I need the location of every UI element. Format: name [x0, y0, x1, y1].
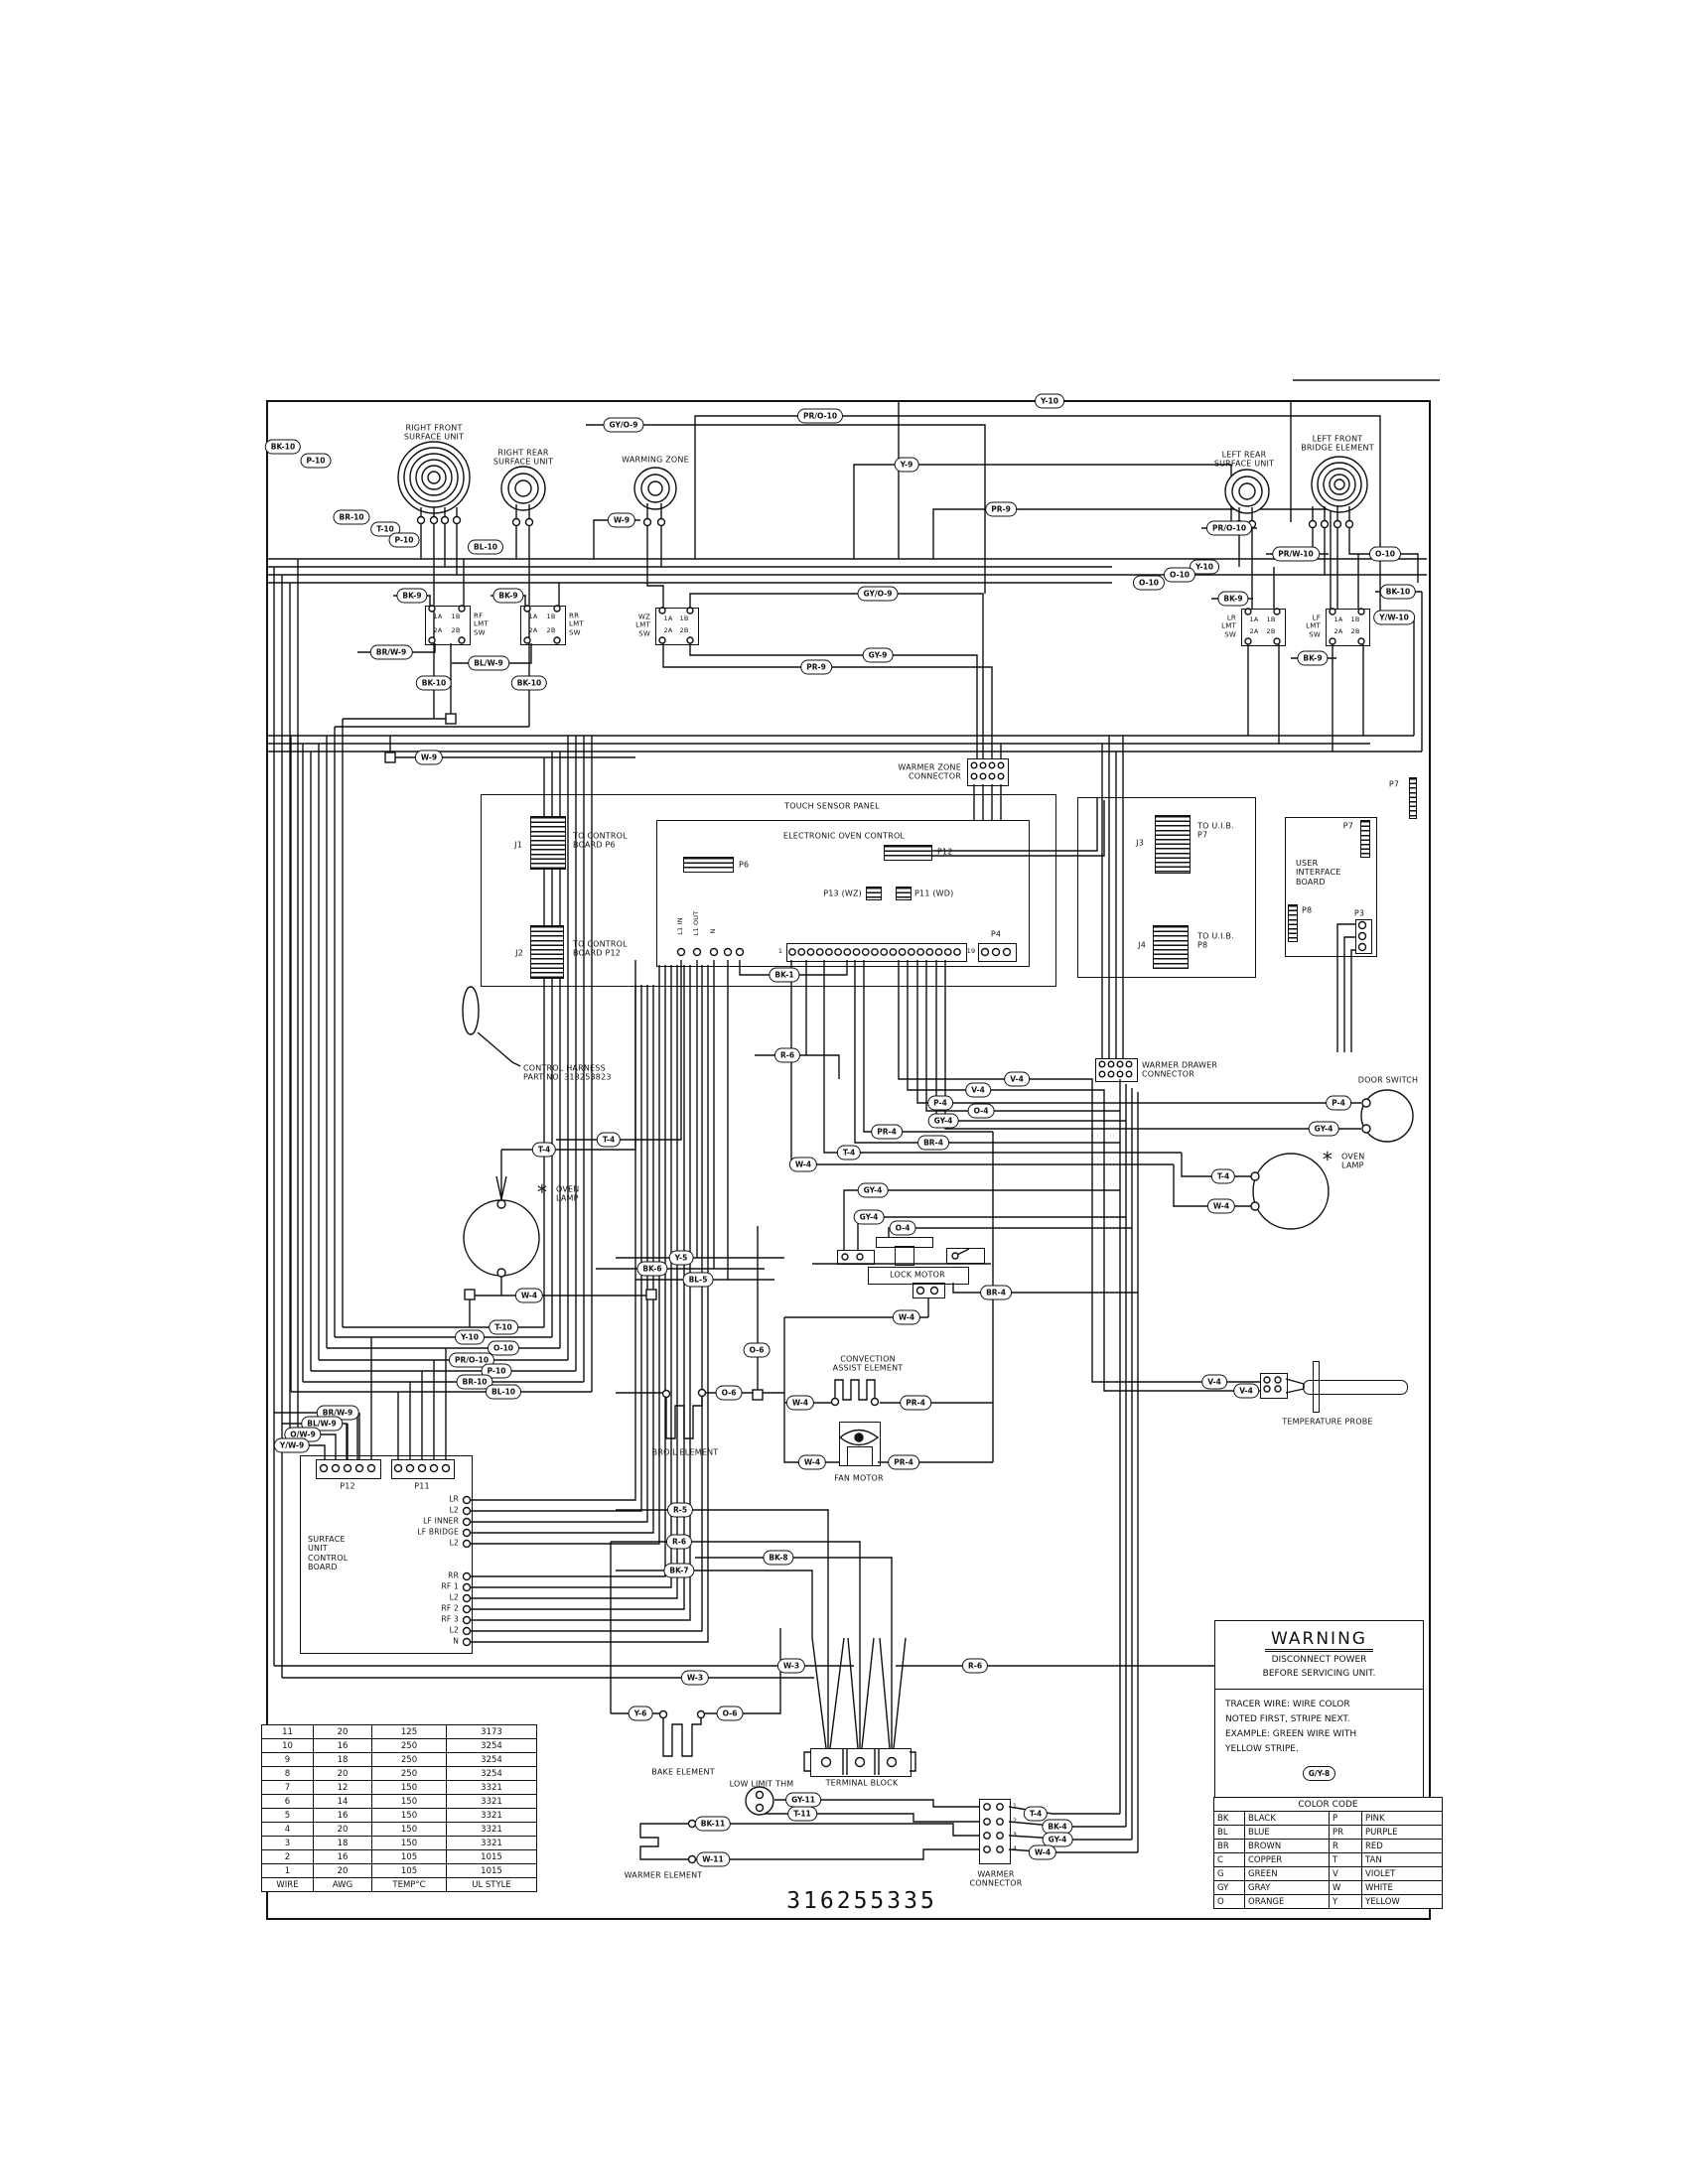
wire-table-cell: 18 [314, 1753, 372, 1767]
wire-table-cell: 12 [314, 1781, 372, 1795]
wire-label: PR-4 [871, 1125, 903, 1140]
wire-label: W-4 [893, 1310, 920, 1325]
lock-motor-left-plate [837, 1250, 875, 1265]
color-code-cell: W [1330, 1881, 1362, 1895]
wire-label: Y-10 [1035, 394, 1064, 409]
sucb-pin-label: N [453, 1638, 459, 1647]
color-code-cell: BROWN [1245, 1840, 1330, 1853]
wire-label: Y-10 [455, 1330, 485, 1345]
label: L1 OUT [693, 911, 701, 936]
rr-limit-switch-pin-label: 2A [529, 627, 538, 635]
label: * [1323, 1149, 1333, 1172]
sucb-p12-connector [316, 1459, 381, 1479]
oven-lamp-right-label: OVEN LAMP [1341, 1153, 1364, 1171]
wire-label: V-4 [965, 1083, 991, 1098]
label: L1 IN [677, 917, 685, 935]
label: TO CONTROL BOARD P12 [573, 940, 628, 959]
wire-label: T-10 [489, 1320, 518, 1335]
right-rear-surface-unit-label: RIGHT REAR SURFACE UNIT [493, 449, 553, 468]
sucb-pin-label: L2 [450, 1594, 459, 1603]
p6-connector [683, 857, 734, 873]
wire-label: PR/O-10 [1206, 521, 1252, 536]
color-code-cell: PURPLE [1362, 1826, 1443, 1840]
p13-connector [866, 887, 882, 900]
wire-table-cell: 14 [314, 1795, 372, 1809]
label: P3 [1354, 908, 1364, 917]
wire-table-cell: 3254 [447, 1739, 537, 1753]
wire-label: W-3 [681, 1671, 709, 1686]
wire-label: BK-9 [396, 589, 427, 604]
p12-connector [884, 845, 932, 861]
label: P12 [340, 1481, 355, 1490]
lf-limit-switch-pin-label: 2A [1334, 628, 1343, 636]
wire-table-cell: 3321 [447, 1795, 537, 1809]
probe-rod [1303, 1380, 1408, 1395]
wire-label: PR/W-10 [1272, 547, 1320, 562]
wire-label: BL-10 [486, 1385, 521, 1400]
wire-table-cell: 18 [314, 1837, 372, 1850]
surface-unit-control-board-label: SURFACE UNIT CONTROL BOARD [308, 1535, 348, 1572]
wire-label: W-4 [515, 1289, 543, 1303]
sucb-pin-label: RR [448, 1572, 459, 1581]
wire-label: W-9 [415, 751, 443, 765]
wz-limit-switch-pin-label: 1B [680, 615, 689, 623]
wire-table-cell: 20 [314, 1767, 372, 1781]
rf-limit-switch-pin-label: 1B [452, 614, 461, 621]
color-code-cell: BLACK [1245, 1812, 1330, 1826]
wire-table-cell: 250 [372, 1753, 447, 1767]
wire-label: T-4 [837, 1146, 861, 1160]
warmer-drawer-connector-label: WARMER DRAWER CONNECTOR [1142, 1061, 1217, 1080]
wire-label: PR/O-10 [797, 409, 843, 424]
wire-label: GY-4 [858, 1183, 889, 1198]
wire-label: BK-10 [1380, 585, 1416, 600]
rr-limit-switch-pin-label: 1A [529, 614, 538, 621]
touch-sensor-panel-label: TOUCH SENSOR PANEL [784, 801, 880, 810]
wire-label: R-5 [667, 1503, 693, 1518]
color-code-cell: V [1330, 1867, 1362, 1881]
wire-table-cell: 1015 [447, 1864, 537, 1878]
rr-limit-switch-pin-label: 1B [547, 614, 556, 621]
temperature-probe-label: TEMPERATURE PROBE [1282, 1417, 1372, 1426]
warning-title: WARNING [1265, 1629, 1373, 1652]
wire-label: W-9 [608, 513, 635, 528]
color-code-cell: GY [1214, 1881, 1245, 1895]
rf-limit-switch-pin-label: 1A [434, 614, 443, 621]
wire-label: GY/O-9 [857, 587, 898, 602]
color-code-cell: WHITE [1362, 1881, 1443, 1895]
wire-label: T-4 [597, 1133, 621, 1148]
color-code-cell: RED [1362, 1840, 1443, 1853]
wire-label: BR-10 [333, 510, 369, 525]
label: P11 (WD) [914, 888, 953, 897]
wire-table-cell: 250 [372, 1739, 447, 1753]
p4-connector [978, 943, 1017, 962]
p3-connector [1355, 919, 1372, 954]
color-code-cell: YELLOW [1362, 1895, 1443, 1909]
label: N [710, 928, 718, 933]
color-code-cell: C [1214, 1853, 1245, 1867]
color-code-cell: BK [1214, 1812, 1245, 1826]
rf-limit-switch-pin-label: 2A [434, 627, 443, 635]
broil-element-label: BROIL ELEMENT [652, 1447, 719, 1456]
wire-label: R-6 [666, 1535, 692, 1550]
sucb-pin-label: L2 [450, 1540, 459, 1549]
wire-label: BR-4 [917, 1136, 949, 1151]
wire-table-cell: 1015 [447, 1850, 537, 1864]
wire-label: P-10 [389, 533, 420, 548]
left-rear-surface-unit-label: LEFT REAR SURFACE UNIT [1214, 451, 1274, 470]
wire-label: T-4 [1211, 1169, 1235, 1184]
lf-limit-switch [1326, 609, 1370, 646]
wire-label: PR-4 [900, 1396, 931, 1411]
wire-table-cell: 3321 [447, 1809, 537, 1823]
wire-label: P-4 [1326, 1096, 1351, 1111]
wire-label: O-4 [968, 1104, 995, 1119]
color-code-cell: T [1330, 1853, 1362, 1867]
wire-label: Y-9 [895, 458, 919, 473]
wire-label: W-4 [786, 1396, 814, 1411]
door-switch-label: DOOR SWITCH [1358, 1075, 1418, 1084]
label: P8 [1302, 905, 1312, 914]
wiring-diagram-page: 1A1B2A2BRF LMT SW1A1B2A2BRR LMT SW1A1B2A… [0, 0, 1684, 2184]
wire-table-cell: 105 [372, 1850, 447, 1864]
label: 1 [778, 948, 782, 956]
wire-table-cell: 9 [262, 1753, 314, 1767]
lr-limit-switch-pin-label: 1B [1267, 616, 1276, 624]
wire-label: O-6 [744, 1343, 771, 1358]
lf-limit-switch-pin-label: 1B [1351, 616, 1360, 624]
lr-limit-switch [1241, 609, 1286, 646]
wz-limit-switch-pin-label: 1A [664, 615, 673, 623]
sucb-pin-label: LR [449, 1496, 459, 1505]
rf-limit-switch-label: RF LMT SW [474, 613, 489, 637]
right-front-surface-unit-label: RIGHT FRONT SURFACE UNIT [404, 424, 464, 443]
wire-table-cell: 150 [372, 1781, 447, 1795]
lr-limit-switch-pin-label: 2B [1267, 628, 1276, 636]
warmer-zone-connector-label: WARMER ZONE CONNECTOR [898, 763, 961, 782]
rf-limit-switch [425, 606, 471, 645]
wire-label: T-4 [532, 1143, 556, 1158]
wire-table-cell: 4 [262, 1823, 314, 1837]
sucb-pin-label: LF INNER [423, 1518, 459, 1527]
rr-limit-switch-label: RR LMT SW [569, 613, 584, 637]
color-code-cell: P [1330, 1812, 1362, 1826]
tracer-example-label: G/Y-8 [1303, 1766, 1336, 1781]
wire-label: Y/W-9 [274, 1438, 310, 1453]
wire-label: O-10 [1164, 568, 1195, 583]
wire-table-cell: UL STYLE [447, 1878, 537, 1892]
label: 1 [1013, 1803, 1017, 1811]
wire-label: BK-9 [492, 589, 523, 604]
label: P6 [739, 860, 749, 869]
wire-label: PR-4 [888, 1455, 919, 1470]
wire-table-cell: 250 [372, 1767, 447, 1781]
wire-label: BR-4 [980, 1286, 1012, 1300]
color-code-cell: BL [1214, 1826, 1245, 1840]
wz-limit-switch-label: WZ LMT SW [635, 614, 650, 638]
wire-label: BK-10 [511, 676, 547, 691]
color-code-cell: TAN [1362, 1853, 1443, 1867]
wire-label: BK-9 [1297, 651, 1328, 666]
wire-label: GY-4 [928, 1114, 959, 1129]
color-code-cell: O [1214, 1895, 1245, 1909]
wire-table-cell: 16 [314, 1739, 372, 1753]
wire-label: P-4 [927, 1096, 953, 1111]
wire-label: W-4 [798, 1455, 826, 1470]
terminal-block-label: TERMINAL BLOCK [826, 1778, 899, 1787]
wire-label: PR-9 [985, 502, 1017, 517]
control-harness-note: CONTROL HARNESS PART NO. 318253823 [523, 1064, 612, 1083]
wire-table-cell: 3254 [447, 1767, 537, 1781]
wire-table-cell: 16 [314, 1809, 372, 1823]
label: TO CONTROL BOARD P6 [573, 832, 628, 851]
wire-label: BK-9 [1217, 592, 1248, 607]
sucb-pin-label: LF BRIDGE [417, 1529, 459, 1538]
wire-table-cell: TEMP°C [372, 1878, 447, 1892]
lock-motor-stem [895, 1246, 914, 1266]
wire-label: R-6 [962, 1659, 988, 1674]
wire-table-cell: 8 [262, 1767, 314, 1781]
sucb-pin-label: RF 1 [442, 1583, 459, 1592]
lr-limit-switch-label: LR LMT SW [1221, 614, 1236, 639]
wire-label: GY-4 [1309, 1122, 1339, 1137]
label: P7 [1343, 821, 1353, 830]
lock-motor-label: LOCK MOTOR [890, 1270, 945, 1279]
color-code-table: COLOR CODEBKBLACKPPINKBLBLUEPRPURPLEBRBR… [1213, 1797, 1443, 1909]
color-code-cell: ORANGE [1245, 1895, 1330, 1909]
wire-label: O-10 [1369, 547, 1401, 562]
wire-table-cell: 7 [262, 1781, 314, 1795]
wire-label: V-4 [1201, 1375, 1227, 1390]
wz-limit-switch-pin-label: 2B [680, 627, 689, 635]
wire-label: R-6 [774, 1048, 800, 1063]
warning-subtitle: DISCONNECT POWER BEFORE SERVICING UNIT. [1215, 1654, 1423, 1690]
wire-table-cell: 3254 [447, 1753, 537, 1767]
fan-motor-base [847, 1446, 873, 1466]
label: P4 [991, 929, 1001, 938]
wire-label: O-4 [890, 1221, 916, 1236]
rr-limit-switch [520, 606, 566, 645]
convection-assist-element-label: CONVECTION ASSIST ELEMENT [833, 1355, 904, 1374]
wire-label: BK-6 [636, 1262, 667, 1277]
wire-table-cell: 3 [262, 1837, 314, 1850]
j2-connector [530, 925, 564, 979]
label: P11 [414, 1481, 430, 1490]
color-code-cell: GREEN [1245, 1867, 1330, 1881]
lock-motor-terminals [912, 1283, 945, 1298]
warmer-zone-connector [967, 758, 1009, 786]
color-code-cell: COPPER [1245, 1853, 1330, 1867]
wire-label: BK-7 [663, 1564, 694, 1578]
wire-table-cell: 3173 [447, 1725, 537, 1739]
wire-table-cell: 3321 [447, 1781, 537, 1795]
wire-table-cell: 20 [314, 1864, 372, 1878]
uib-p8-connector [1288, 904, 1298, 942]
lock-motor-switch [946, 1248, 985, 1264]
wire-label: W-4 [1207, 1199, 1235, 1214]
wire-table-cell: 150 [372, 1795, 447, 1809]
wire-table-cell: 1 [262, 1864, 314, 1878]
color-code-cell: R [1330, 1840, 1362, 1853]
wire-label: O-10 [488, 1341, 519, 1356]
label: TO U.I.B. P7 [1197, 822, 1234, 841]
label: 3 [1013, 1832, 1017, 1840]
wire-label: BL-5 [683, 1273, 714, 1288]
part-number: 316255335 [786, 1888, 937, 1914]
color-code-cell: PINK [1362, 1812, 1443, 1826]
wire-table-cell: 2 [262, 1850, 314, 1864]
warmer-connector [979, 1799, 1011, 1864]
bake-element-label: BAKE ELEMENT [651, 1767, 715, 1776]
p7-edge-connector [1409, 777, 1417, 819]
wire-label: GY-9 [863, 648, 894, 663]
wire-label: BR/W-9 [370, 645, 413, 660]
wire-table-cell: 3321 [447, 1823, 537, 1837]
eoc-terminal-strip [786, 943, 967, 962]
wire-table-cell: 6 [262, 1795, 314, 1809]
wire-table-cell: 5 [262, 1809, 314, 1823]
low-limit-thm-label: LOW LIMIT THM [730, 1779, 794, 1788]
sucb-pin-label: RF 2 [442, 1605, 459, 1614]
wire-table-cell: 20 [314, 1725, 372, 1739]
wire-label: P-10 [301, 454, 332, 469]
wire-label: Y-5 [669, 1251, 694, 1266]
wire-label: O-6 [717, 1706, 744, 1721]
oven-lamp-left-label: OVEN LAMP [556, 1185, 579, 1204]
probe-connector [1260, 1373, 1288, 1399]
wire-label: Y/W-10 [1373, 611, 1415, 625]
color-code-cell: GRAY [1245, 1881, 1330, 1895]
color-code-cell: BLUE [1245, 1826, 1330, 1840]
wire-label: BL/W-9 [468, 656, 509, 671]
label: P13 (WZ) [823, 888, 862, 897]
wire-label: BL-10 [468, 540, 503, 555]
tracer-note: TRACER WIRE: WIRE COLOR NOTED FIRST, STR… [1215, 1690, 1423, 1760]
wire-table-cell: 20 [314, 1823, 372, 1837]
fan-motor-label: FAN MOTOR [834, 1473, 884, 1482]
color-code-cell: G [1214, 1867, 1245, 1881]
wire-table-cell: 3321 [447, 1837, 537, 1850]
wire-label: BK-10 [416, 676, 452, 691]
warmer-connector-label: WARMER CONNECTOR [969, 1870, 1022, 1889]
wire-table-cell: 150 [372, 1823, 447, 1837]
wire-table-cell: 125 [372, 1725, 447, 1739]
wire-label: O-6 [716, 1386, 743, 1401]
wz-limit-switch [655, 608, 699, 645]
wire-label: O-10 [1133, 576, 1165, 591]
label: TO U.I.B. P8 [1197, 932, 1234, 951]
wire-label: W-11 [696, 1852, 730, 1867]
wire-table-cell: WIRE [262, 1878, 314, 1892]
wire-label: BK-11 [695, 1817, 731, 1832]
rf-limit-switch-pin-label: 2B [452, 627, 461, 635]
sucb-pin-label: L2 [450, 1507, 459, 1516]
uib-p7-connector [1360, 820, 1370, 858]
warning-box: WARNING DISCONNECT POWER BEFORE SERVICIN… [1214, 1620, 1424, 1799]
wire-table-cell: 105 [372, 1864, 447, 1878]
label: J4 [1138, 940, 1146, 949]
lr-limit-switch-pin-label: 1A [1250, 616, 1259, 624]
wire-table-cell: 10 [262, 1739, 314, 1753]
wire-table-cell: 150 [372, 1837, 447, 1850]
color-code-cell: BR [1214, 1840, 1245, 1853]
terminal-block-body [810, 1748, 912, 1777]
wire-label: GY/O-9 [603, 418, 643, 433]
wire-table-cell: 11 [262, 1725, 314, 1739]
wire-label: V-4 [1004, 1072, 1030, 1087]
sucb-pin-label: L2 [450, 1627, 459, 1636]
wire-label: W-4 [789, 1158, 817, 1172]
wire-table-cell: AWG [314, 1878, 372, 1892]
wire-label: T-11 [787, 1807, 817, 1822]
label: 19 [967, 948, 976, 956]
label: * [537, 1181, 547, 1205]
electronic-oven-control-label: ELECTRONIC OVEN CONTROL [783, 831, 905, 840]
wire-label: W-4 [1029, 1845, 1056, 1860]
wire-label: BK-1 [769, 968, 799, 983]
p11-connector [896, 887, 912, 900]
lf-limit-switch-label: LF LMT SW [1306, 614, 1321, 639]
wire-label: BK-10 [265, 440, 301, 455]
wire-table-cell: 150 [372, 1809, 447, 1823]
color-code-title: COLOR CODE [1214, 1798, 1443, 1812]
wire-label: Y-6 [629, 1706, 653, 1721]
wire-table-cell: 16 [314, 1850, 372, 1864]
j1-connector [530, 816, 566, 870]
wire-gauge-table: 1120125317310162503254918250325482025032… [261, 1724, 537, 1892]
color-code-cell: PR [1330, 1826, 1362, 1840]
label: P12 [937, 847, 953, 856]
warmer-drawer-connector [1095, 1058, 1138, 1082]
left-front-bridge-element-label: LEFT FRONT BRIDGE ELEMENT [1301, 435, 1374, 454]
lr-limit-switch-pin-label: 2A [1250, 628, 1259, 636]
rr-limit-switch-pin-label: 2B [547, 627, 556, 635]
wire-label: V-4 [1233, 1384, 1259, 1399]
label: J1 [514, 840, 522, 849]
wire-label: PR-9 [800, 660, 832, 675]
j4-connector [1153, 925, 1189, 969]
wire-label: GY-4 [854, 1210, 885, 1225]
label: P7 [1389, 779, 1399, 788]
label: 4 [1013, 1845, 1017, 1853]
wz-limit-switch-pin-label: 2A [664, 627, 673, 635]
color-code-cell: VIOLET [1362, 1867, 1443, 1881]
lf-limit-switch-pin-label: 2B [1351, 628, 1360, 636]
label: 2 [1013, 1818, 1017, 1826]
wire-label: W-3 [777, 1659, 805, 1674]
wire-label: BK-8 [763, 1551, 793, 1566]
label: J2 [515, 948, 523, 957]
sucb-pin-label: RF 3 [442, 1616, 459, 1625]
wire-label: GY-11 [785, 1793, 821, 1808]
wire-label: T-4 [1024, 1807, 1048, 1822]
label: J3 [1136, 838, 1144, 847]
color-code-cell: Y [1330, 1895, 1362, 1909]
lf-limit-switch-pin-label: 1A [1334, 616, 1343, 624]
user-interface-board-label: USER INTERFACE BOARD [1296, 859, 1340, 887]
sucb-p11-connector [391, 1459, 455, 1479]
warming-zone-label: WARMING ZONE [622, 455, 689, 464]
j3-connector [1155, 815, 1191, 874]
warmer-element-label: WARMER ELEMENT [625, 1870, 703, 1879]
